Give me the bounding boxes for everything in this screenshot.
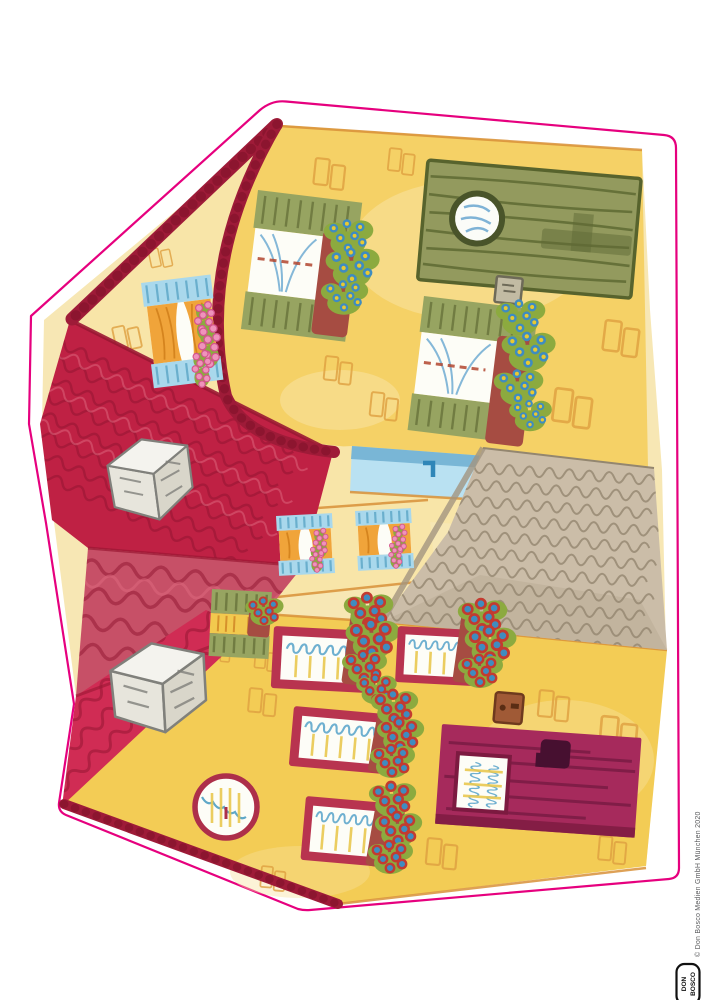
round-window <box>195 776 257 838</box>
copyright-text: © Don Bosco Medien GmbH München 2020 <box>694 811 702 957</box>
craft-sheet-page: © Don Bosco Medien GmbH München 2020 DON… <box>0 0 714 1000</box>
doorbell <box>493 692 524 724</box>
house-template-illustration: © Don Bosco Medien GmbH München 2020 DON… <box>0 0 714 1000</box>
copyright-notice: © Don Bosco Medien GmbH München 2020 <box>694 811 702 957</box>
porthole-ball <box>450 191 504 245</box>
logo-line-2: BOSCO <box>690 972 697 996</box>
front-door <box>435 724 641 838</box>
barn-gate <box>418 160 642 298</box>
door-window <box>454 753 510 812</box>
publisher-logo: DON BOSCO <box>677 964 700 1000</box>
logo-line-1: DON <box>681 976 688 991</box>
